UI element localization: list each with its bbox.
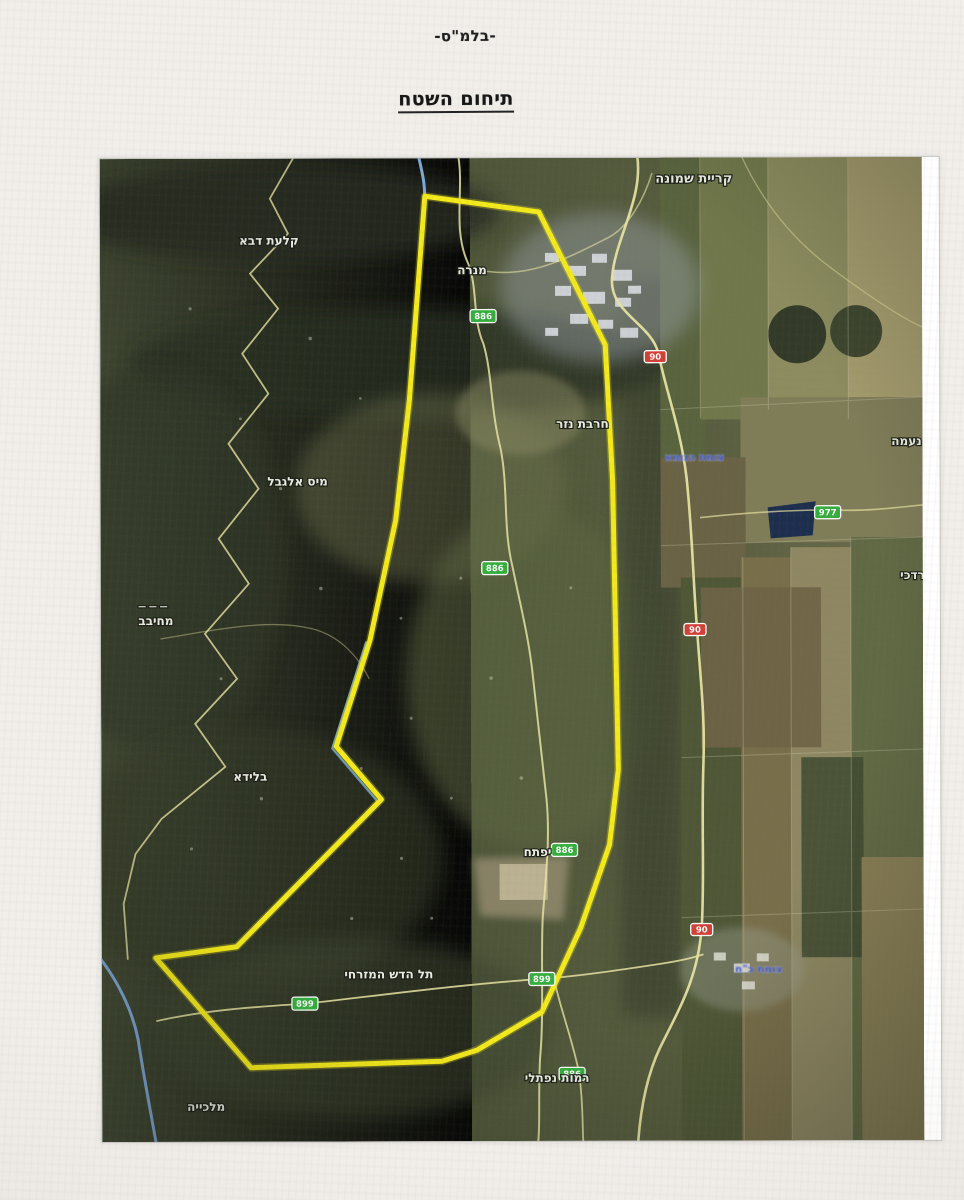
title-row: תיחום השטח (0, 85, 912, 116)
document-header: 2 -בלמ"ס- (0, 0, 930, 49)
page-number-fragment: 2 (448, 0, 472, 8)
satellite-map-figure: 886886886899899886977909090 קריית שמונהק… (99, 156, 943, 1143)
classification-marking: -בלמ"ס- (0, 23, 930, 49)
photo-vignette (100, 157, 925, 1142)
page-title: תיחום השטח (398, 88, 514, 114)
satellite-map: 886886886899899886977909090 קריית שמונהק… (100, 157, 925, 1142)
